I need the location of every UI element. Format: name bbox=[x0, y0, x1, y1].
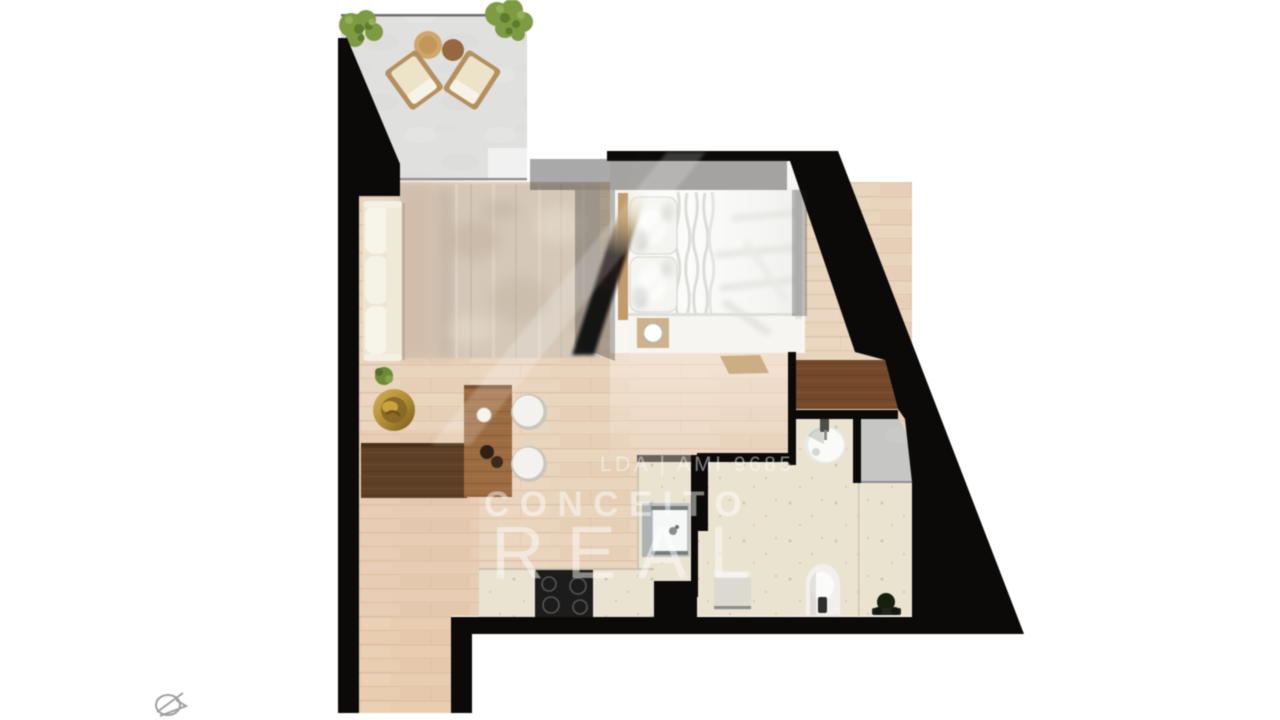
svg-text:REAL: REAL bbox=[491, 511, 772, 594]
svg-text:LDA | AMI 9685: LDA | AMI 9685 bbox=[600, 453, 795, 476]
